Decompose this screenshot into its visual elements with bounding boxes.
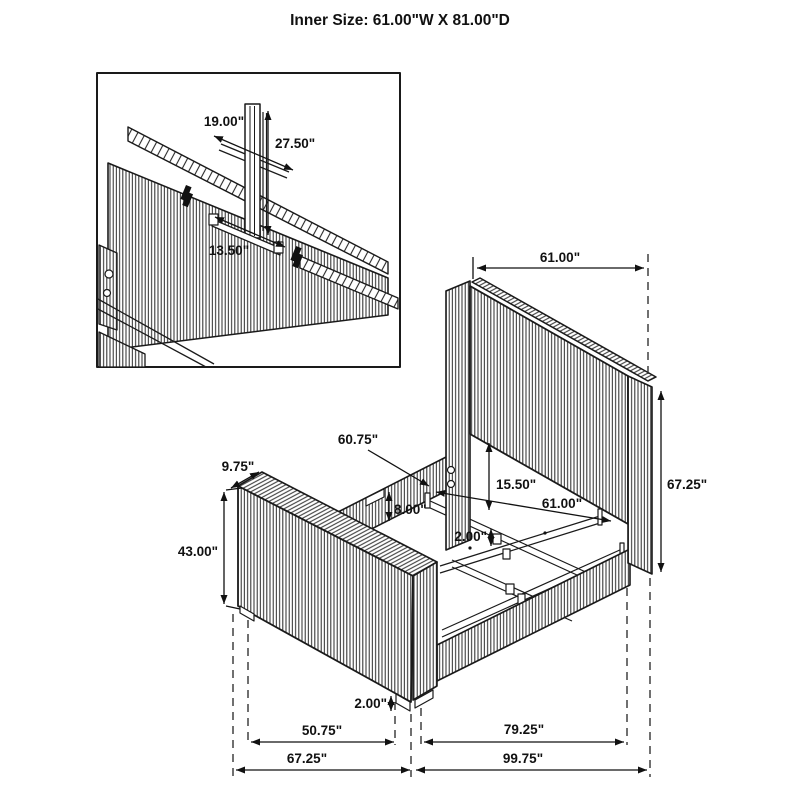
diagram-page: Inner Size: 61.00"W X 81.00"D — [0, 0, 800, 800]
center-support-leg — [503, 549, 510, 559]
inset-support-bar — [245, 104, 260, 238]
dim-slat-rail-length: 60.75" — [338, 432, 378, 447]
dim-headboard-height: 67.25" — [667, 477, 707, 492]
bolt-hole — [448, 467, 455, 474]
dim-overall-length: 99.75" — [503, 751, 543, 766]
dim-center-leg-height: 2.00" — [454, 529, 487, 544]
dim-rail-span: 79.25" — [504, 722, 544, 737]
dim-bracket-length: 13.50" — [209, 243, 249, 258]
dim-footboard-span: 50.75" — [302, 723, 342, 738]
dim-support-height: 27.50" — [275, 136, 315, 151]
dim-rail-height: 8.00" — [394, 502, 427, 517]
dim-footboard-depth: 9.75" — [222, 459, 255, 474]
dim-foot-leg-height: 2.00" — [354, 696, 387, 711]
footboard-end — [413, 562, 437, 700]
headboard-left-wing — [446, 281, 470, 550]
page-title: Inner Size: 61.00"W X 81.00"D — [290, 12, 510, 29]
headboard-right-wing — [628, 376, 652, 574]
bolt-hole — [104, 290, 111, 297]
dim-overall-width: 67.25" — [287, 751, 327, 766]
headboard-bracket-detail-inset: 19.00" 27.50" 13.50" — [97, 73, 400, 367]
dim-headboard-clearance: 15.50" — [496, 477, 536, 492]
bolt-hole — [105, 270, 113, 278]
bed-dimension-diagram: Inner Size: 61.00"W X 81.00"D — [0, 0, 800, 800]
dim-inner-width: 61.00" — [542, 496, 582, 511]
center-support-leg — [506, 584, 514, 594]
dim-footboard-height: 43.00" — [178, 544, 218, 559]
center-support-leg — [493, 534, 501, 544]
dim-headboard-width: 61.00" — [540, 250, 580, 265]
dim-bracket-width: 19.00" — [204, 114, 244, 129]
near-side-rail — [437, 549, 630, 681]
bolt-hole — [448, 481, 455, 488]
